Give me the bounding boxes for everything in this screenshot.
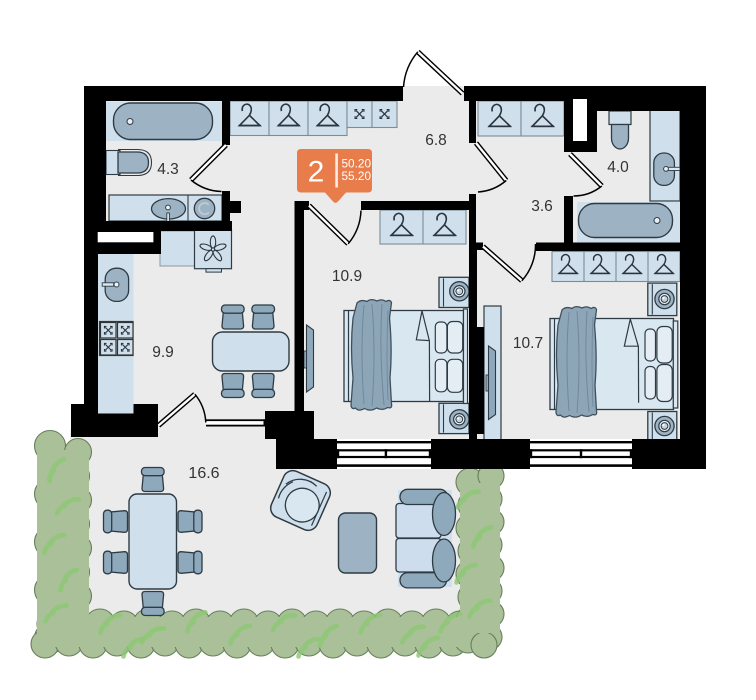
svg-text:4.3: 4.3 [157, 161, 179, 178]
svg-text:3.6: 3.6 [531, 198, 553, 215]
svg-text:4.0: 4.0 [607, 159, 629, 176]
svg-text:2: 2 [308, 156, 325, 189]
svg-text:6.8: 6.8 [425, 132, 447, 149]
svg-text:9.9: 9.9 [152, 344, 174, 361]
svg-text:16.6: 16.6 [188, 465, 219, 482]
svg-text:10.7: 10.7 [513, 335, 543, 352]
svg-text:10.9: 10.9 [332, 268, 362, 285]
svg-text:55.20: 55.20 [342, 169, 372, 183]
